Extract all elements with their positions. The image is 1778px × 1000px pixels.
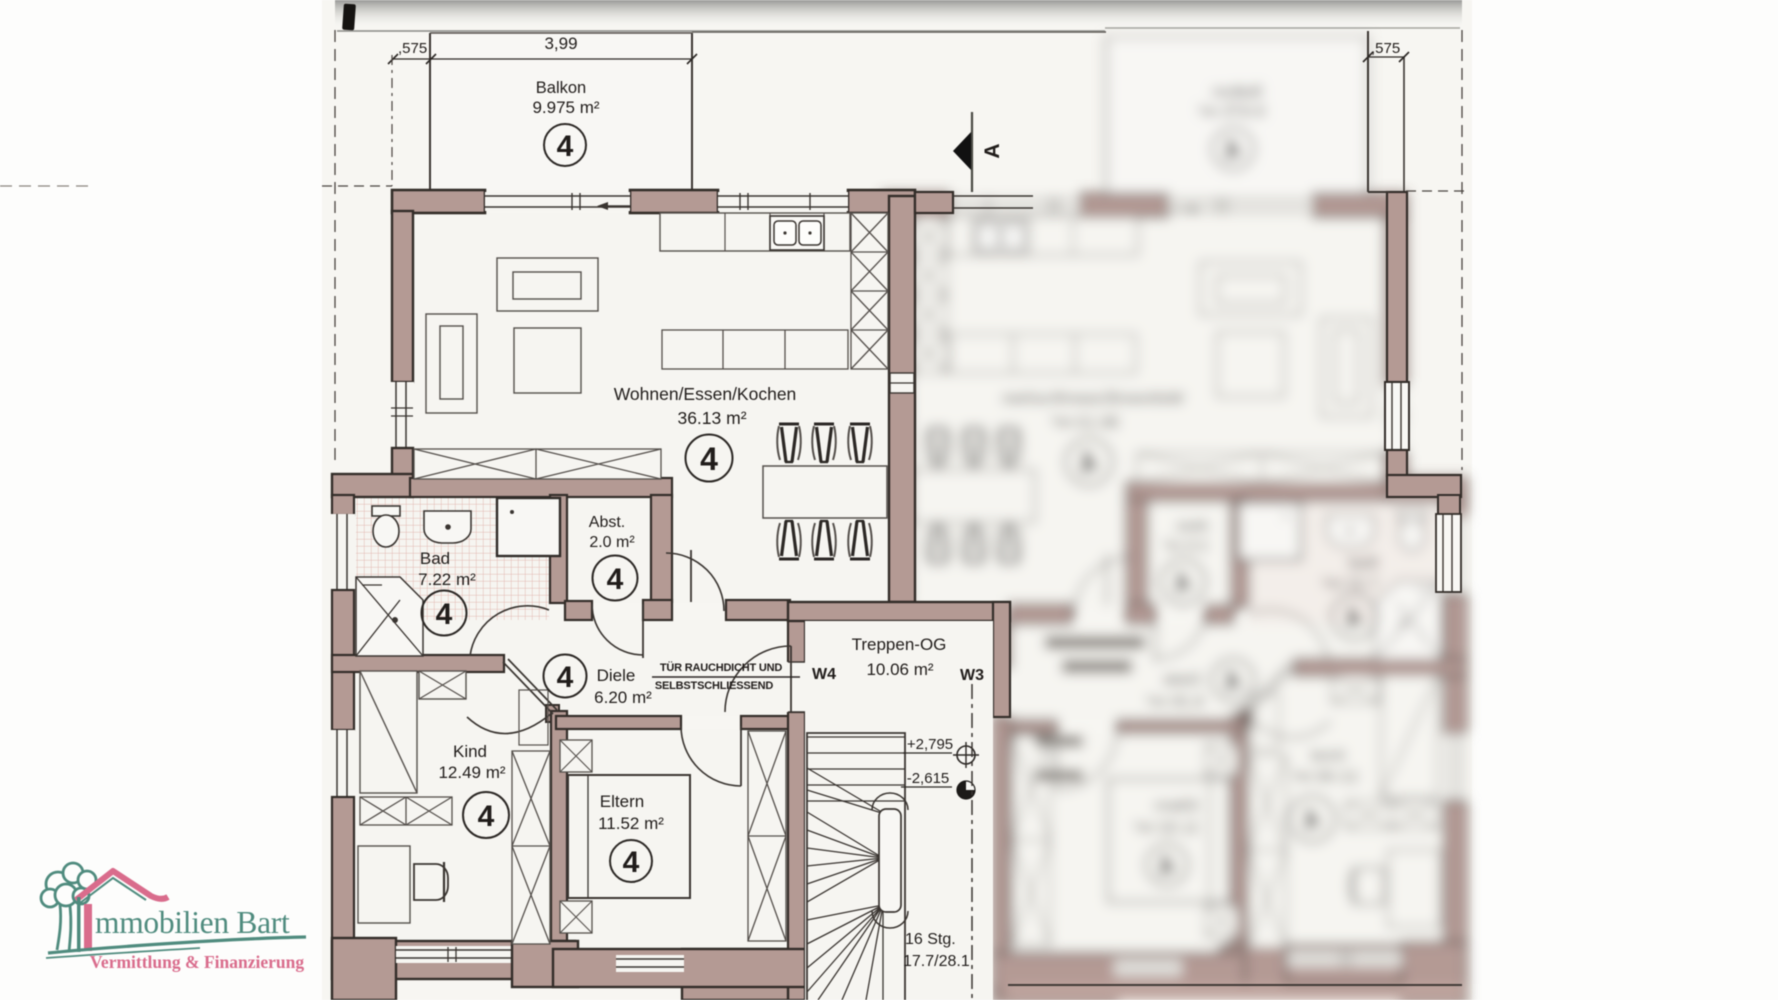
svg-text:,575: ,575: [398, 40, 427, 57]
svg-text:3,99: 3,99: [544, 34, 577, 53]
svg-text:SELBSTSCHLIESSEND: SELBSTSCHLIESSEND: [655, 680, 773, 692]
svg-text:A: A: [981, 143, 1004, 158]
svg-text:Vermittlung & Finanzierung: Vermittlung & Finanzierung: [90, 952, 304, 972]
svg-text:10.06 m²: 10.06 m²: [866, 660, 933, 679]
svg-text:W4: W4: [812, 666, 836, 683]
svg-text:17.7/28.1: 17.7/28.1: [903, 953, 970, 970]
svg-text:mmobilien Bart: mmobilien Bart: [95, 905, 290, 940]
svg-text:,575: ,575: [1371, 40, 1400, 57]
svg-text:TÜR RAUCHDICHT UND: TÜR RAUCHDICHT UND: [660, 661, 783, 674]
svg-text:W3: W3: [960, 667, 984, 684]
svg-text:Treppen-OG: Treppen-OG: [852, 635, 947, 654]
svg-text:16 Stg.: 16 Stg.: [905, 931, 956, 948]
svg-text:-2,615: -2,615: [907, 770, 950, 787]
svg-text:+2,795: +2,795: [907, 736, 953, 753]
